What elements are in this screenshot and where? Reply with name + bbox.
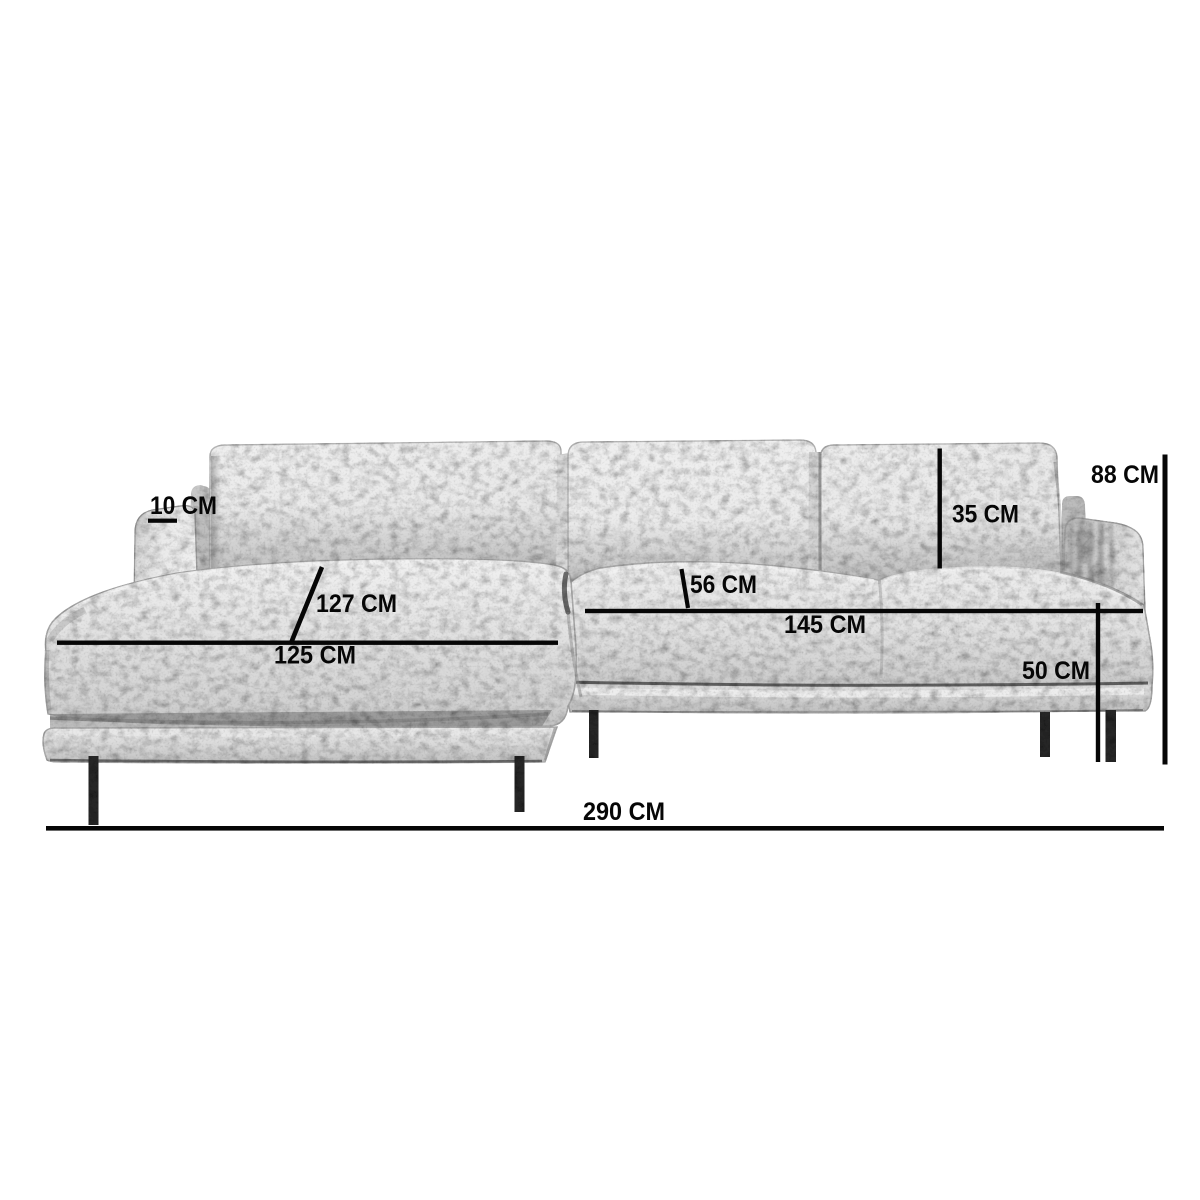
svg-text:290 CM: 290 CM (583, 798, 665, 826)
svg-text:127 CM: 127 CM (316, 590, 397, 618)
svg-text:35 CM: 35 CM (952, 501, 1019, 529)
svg-text:125 CM: 125 CM (274, 642, 356, 670)
svg-text:10 CM: 10 CM (150, 492, 217, 520)
svg-text:56 CM: 56 CM (690, 571, 757, 599)
svg-text:50 CM: 50 CM (1022, 657, 1090, 685)
svg-text:145 CM: 145 CM (784, 611, 866, 639)
svg-text:88 CM: 88 CM (1091, 461, 1159, 489)
